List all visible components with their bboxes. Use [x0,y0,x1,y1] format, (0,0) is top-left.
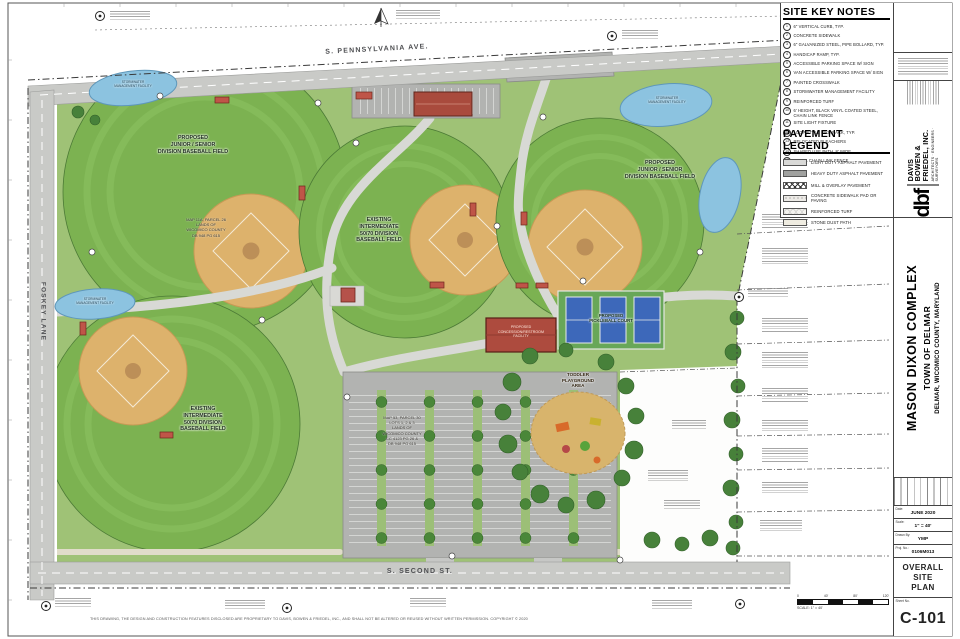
label-stormwater-west: STORMWATER MANAGEMENT FACILITY [58,297,132,305]
benchmark-note [748,288,788,298]
title-block: dbf DAVIS BOWEN & FRIEDEL, INC. ARCHITEC… [893,3,952,636]
key-note: 8STORMWATER MANAGEMENT FACILITY [783,88,890,96]
note-number: 3 [783,41,791,49]
pavement-legend: PAVEMENT LEGEND LIGHT DUTY ASPHALT PAVEM… [783,128,890,231]
central-plaza [330,286,364,306]
title-block-blank [894,3,952,53]
key-note: 9REINFORCED TURF [783,98,890,106]
copyright-disclaimer: THIS DRAWING, THE DESIGN AND CONSTRUCTIO… [90,617,862,621]
parcel-note [762,248,808,264]
site-key-notes-title: SITE KEY NOTES [783,6,890,20]
sheet-number-box: Sheet No. C-101 [894,598,952,635]
parcel-note [762,352,808,368]
note-number: 1 [783,23,791,31]
survey-note [396,10,440,20]
street-label-foskey: FOSKEY LANE [40,262,47,362]
sheet-title: OVERALL SITE PLAN [894,558,952,598]
note-number: 4 [783,51,791,59]
benchmark-note [622,30,658,39]
note-number: 5 [783,60,791,68]
key-note: 4HANDICAP RAMP, TYP. [783,51,890,59]
key-note: 6VAN ACCESSIBLE PARKING SPACE W/ SIGN [783,69,890,77]
benchmark-note [55,598,91,607]
sheet-number: C-101 [894,598,952,628]
firm-tagline: ARCHITECTS · ENGINEERS · SURVEYORS [931,108,939,181]
project-number-row: Proj. No.: 0106M013 [894,545,952,558]
legend-item: MILL & OVERLAY PAVEMENT [783,182,890,189]
legend-item: CONCRETE SIDEWALK PAD OR PAVING [783,193,890,203]
benchmark-note [110,11,150,20]
label-playground: TODDLER PLAYGROUND AREA [530,372,626,389]
playground [531,392,625,474]
dbf-logo: dbf [913,189,933,217]
interior-parcel [620,366,737,562]
parcel-note [762,318,808,332]
note-number: 7 [783,79,791,87]
drawn-row: Drawn By: YMP [894,532,952,545]
label-pickleball: PROPOSED PICKLEBALL COURT [562,313,660,324]
certification-box [894,53,952,81]
firm-name: DAVIS BOWEN & FRIEDEL, INC. ARCHITECTS ·… [907,108,939,185]
revision-grid [894,478,952,506]
scale-label: SCALE: 1" = 40' [797,606,889,610]
parcel-note [760,520,802,532]
swatch-concrete [783,195,807,202]
label-stormwater-ne: STORMWATER MANAGEMENT FACILITY [630,96,704,104]
label-field-center: EXISTING INTERMEDIATE 50/70 DIVISION BAS… [320,217,438,244]
parcel-note [762,448,808,462]
date-value: JUNE 2020 [894,511,952,516]
legend-item: REINFORCED TURF [783,208,890,215]
street-label-second: S. SECOND ST. [335,568,505,575]
swatch-light-asphalt [783,159,807,166]
label-parcel-northwest: MAP 11A, PARCEL 26 LANDS OF WICOMICO COU… [158,217,254,238]
parcel-note [672,420,706,430]
key-note: 5ACCESSIBLE PARKING SPACE W/ SIGN [783,60,890,68]
swatch-mill-overlay [783,182,807,189]
key-note: 2CONCRETE SIDEWALK [783,32,890,40]
info-rows: Date: JUNE 2020 Scale: 1" = 40' Drawn By… [894,506,952,558]
date-row: Date: JUNE 2020 [894,506,952,519]
label-stormwater-nw: STORMWATER MANAGEMENT FACILITY [96,80,170,88]
scale-row: Scale: 1" = 40' [894,519,952,532]
label-parcel-parking: MAP 53, PARCEL 30 LOTS 1, 2 & 3 LANDS OF… [354,415,450,446]
survey-note [410,598,446,607]
pavement-legend-title: PAVEMENT LEGEND [783,128,890,154]
legend-item: STONE DUST PATH [783,219,890,226]
key-note: 7PAINTED CROSSWALK [783,79,890,87]
note-number: 2 [783,32,791,40]
key-note: 16" VERTICAL CURB, TYP. [783,23,890,31]
drawn-value: YMP [894,537,952,542]
label-field-east: PROPOSED JUNIOR / SENIOR DIVISION BASEBA… [598,160,722,180]
project-title: MASON DIXON COMPLEX [905,264,919,430]
label-field-northwest: PROPOSED JUNIOR / SENIOR DIVISION BASEBA… [133,135,253,155]
note-number: 11 [783,119,791,127]
benchmark-note [652,600,692,609]
project-town: TOWN OF DELMAR [922,305,932,389]
scale-bar-ticks: 0 40' 80' 120' [797,594,889,598]
drawing-sheet: S. PENNSYLVANIA AVE. FOSKEY LANE S. SECO… [0,0,960,639]
firm-block: dbf DAVIS BOWEN & FRIEDEL, INC. ARCHITEC… [894,81,952,218]
parcel-note [762,388,808,402]
swatch-stone-dust [783,219,807,226]
label-concession: PROPOSED CONCESSION/RESTROOM FACILITY [487,325,555,339]
legend-item: LIGHT DUTY ASPHALT PAVEMENT [783,159,890,166]
swatch-heavy-asphalt [783,170,807,177]
parcel-note [648,470,688,482]
sheet-number-label: Sheet No. [896,599,910,603]
project-block: MASON DIXON COMPLEX TOWN OF DELMAR DELMA… [894,218,952,478]
benchmark-note [225,600,265,609]
legend-item: HEAVY DUTY ASPHALT PAVEMENT [783,170,890,177]
parcel-note [664,500,700,510]
scale-bar-graphic [797,599,889,605]
note-number: 8 [783,88,791,96]
note-number: 10 [783,107,791,115]
swatch-reinforced-turf [783,208,807,215]
parcel-note [762,482,808,494]
key-note: 36" GALVANIZED STEEL, PIPE BOLLARD, TYP. [783,41,890,49]
project-number-value: 0106M013 [894,550,952,555]
key-note: 106' HEIGHT, BLACK VINYL COATED STEEL, C… [783,107,890,118]
project-location: DELMAR, WICOMICO COUNTY, MARYLAND [935,282,941,413]
key-note: 11SITE LIGHT FIXTURE [783,119,890,127]
scale-bar: 0 40' 80' 120' SCALE: 1" = 40' [797,594,889,610]
scale-value: 1" = 40' [894,524,952,529]
parcel-note [762,420,808,432]
note-number: 6 [783,69,791,77]
note-number: 9 [783,98,791,106]
label-field-southwest: EXISTING INTERMEDIATE 50/70 DIVISION BAS… [142,406,264,433]
